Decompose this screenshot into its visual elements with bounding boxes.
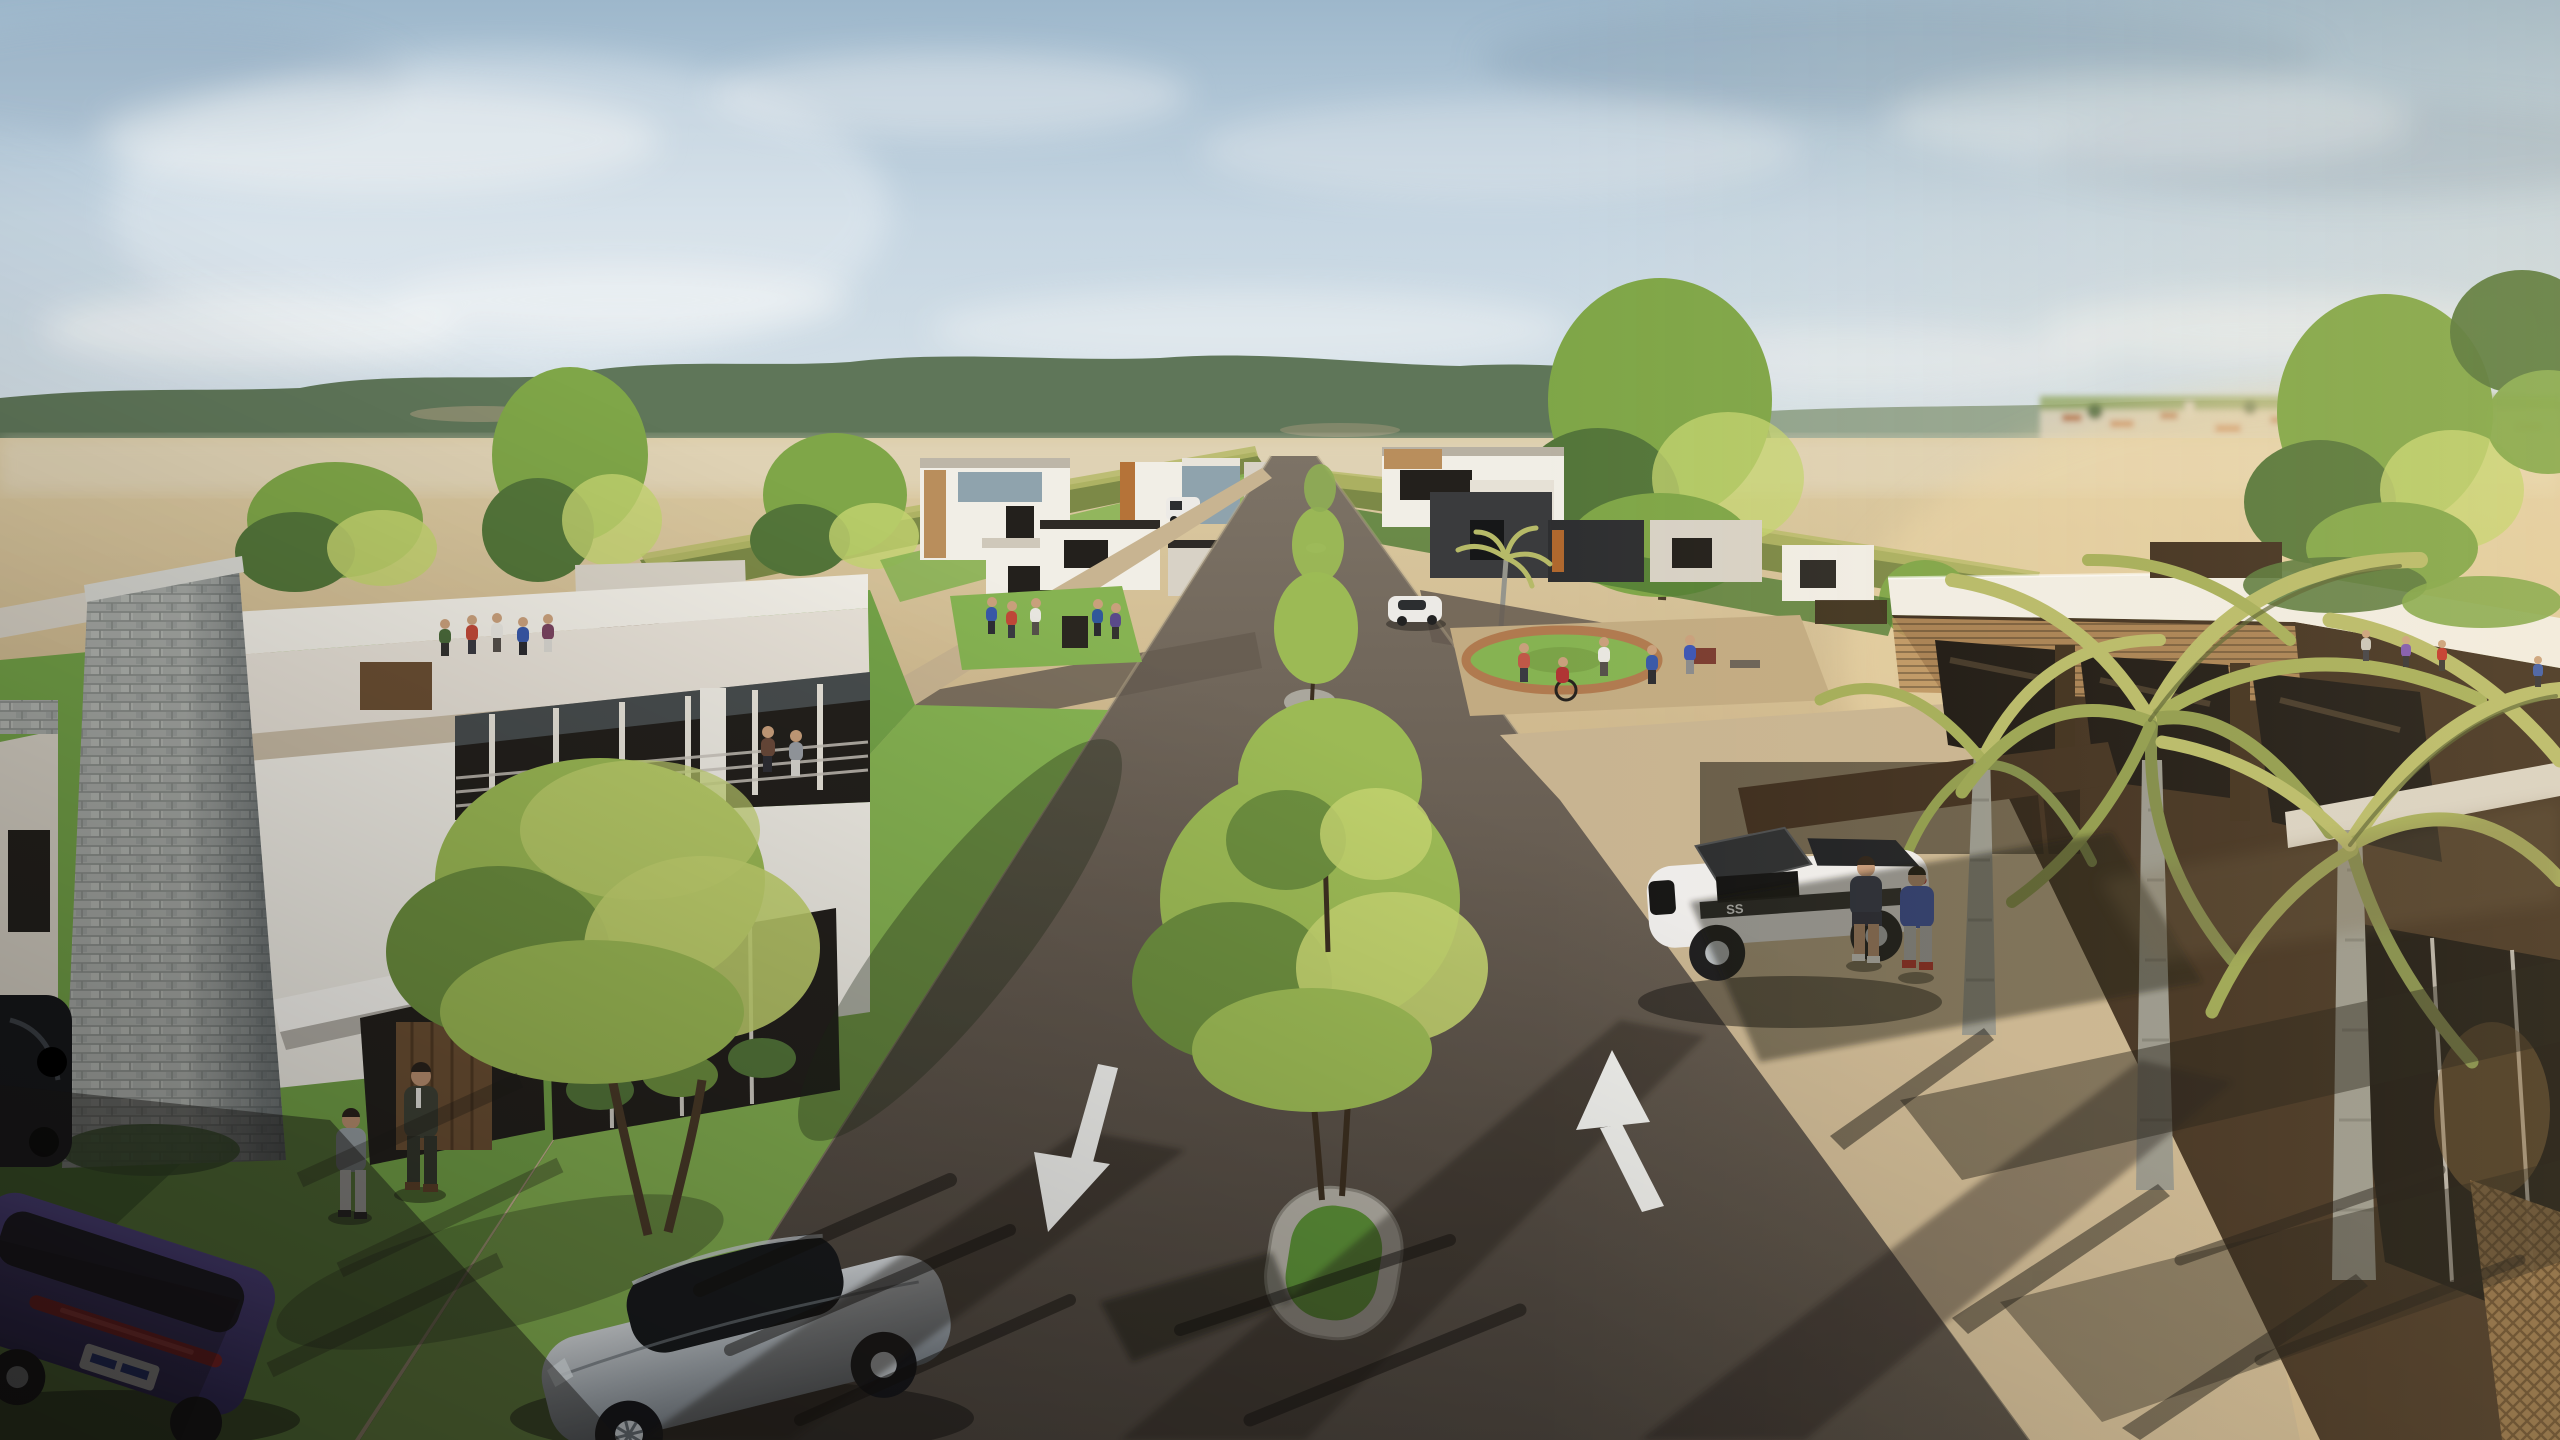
render-canvas: SS xyxy=(0,0,2560,1440)
warm-grade xyxy=(0,0,2560,1440)
scene-svg: SS xyxy=(0,0,2560,1440)
